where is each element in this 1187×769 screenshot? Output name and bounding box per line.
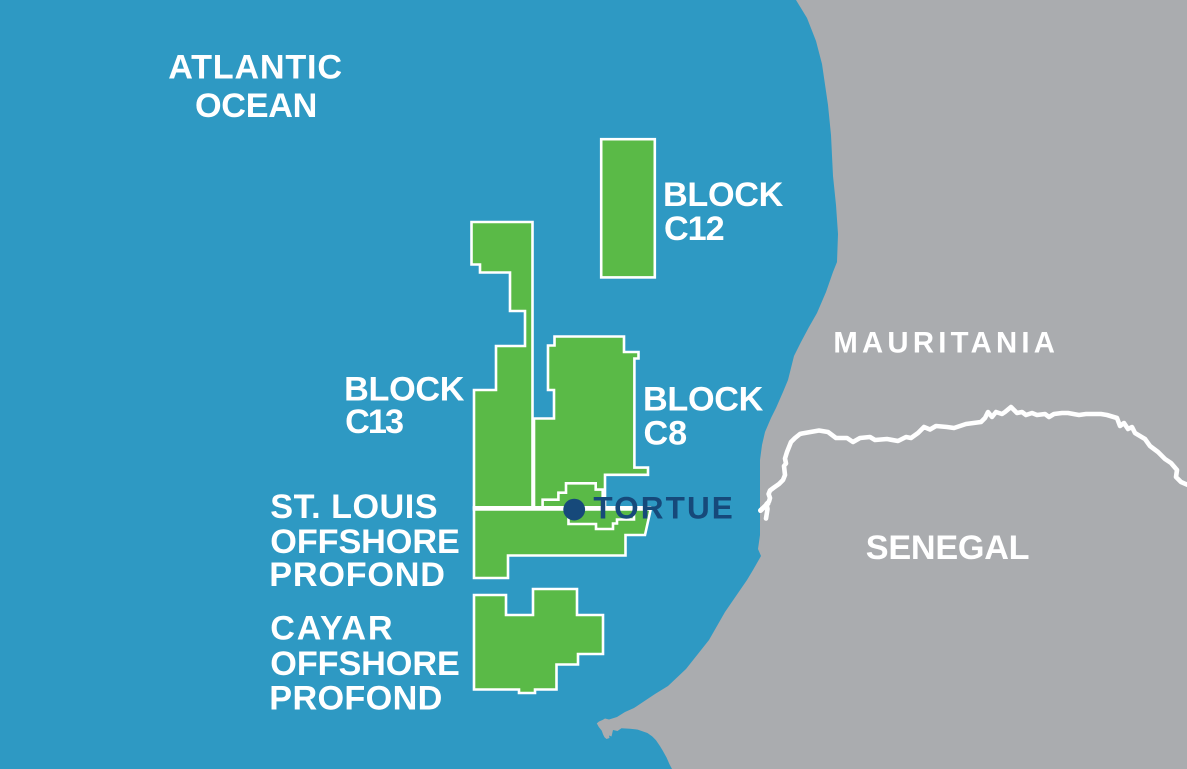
svg-text:C12: C12 <box>664 210 724 248</box>
svg-text:ATLANTIC: ATLANTIC <box>168 48 343 86</box>
svg-text:C13: C13 <box>345 403 403 441</box>
svg-text:MAURITANIA: MAURITANIA <box>833 327 1059 360</box>
svg-text:OCEAN: OCEAN <box>195 87 317 125</box>
svg-text:SENEGAL: SENEGAL <box>866 529 1030 567</box>
svg-text:BLOCK: BLOCK <box>643 381 764 419</box>
svg-text:PROFOND: PROFOND <box>269 679 442 717</box>
svg-text:OFFSHORE: OFFSHORE <box>270 645 459 683</box>
svg-text:TORTUE: TORTUE <box>593 489 735 525</box>
svg-text:OFFSHORE: OFFSHORE <box>270 523 459 561</box>
svg-text:BLOCK: BLOCK <box>663 176 784 214</box>
svg-text:PROFOND: PROFOND <box>269 556 445 594</box>
svg-text:ST. LOUIS: ST. LOUIS <box>270 488 438 526</box>
svg-text:CAYAR: CAYAR <box>270 610 394 648</box>
svg-text:C8: C8 <box>644 414 687 452</box>
